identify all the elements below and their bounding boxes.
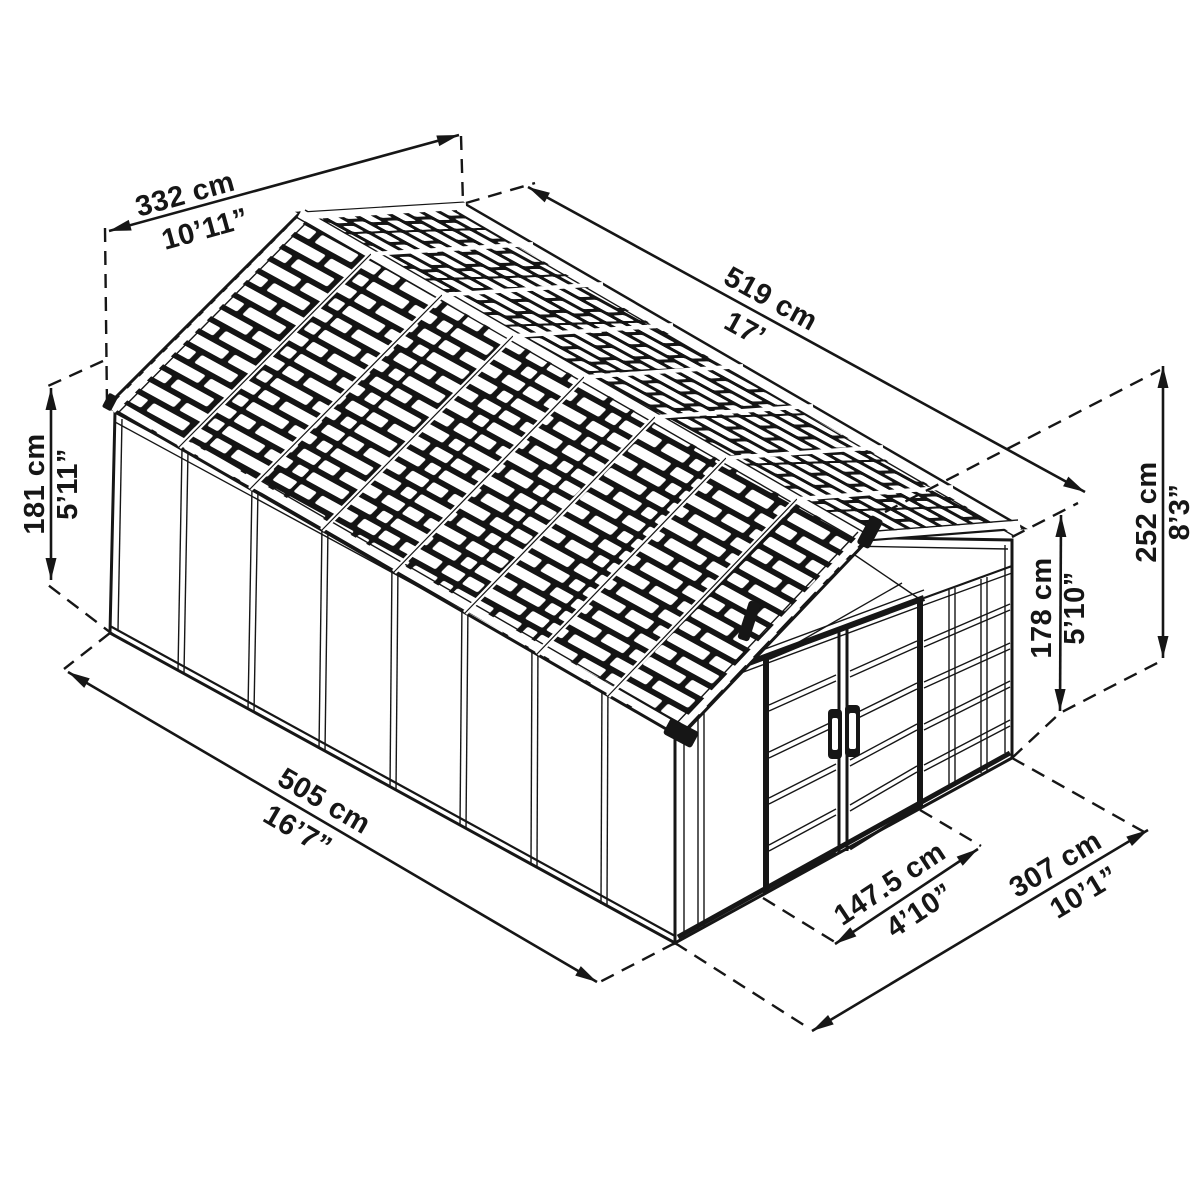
front-right-section — [924, 577, 1010, 788]
door-handle — [828, 705, 860, 759]
double-doors — [766, 600, 920, 893]
dim-base-width: 307 cm 10’1” — [812, 825, 1148, 1031]
dim-door-height-cm: 178 cm — [1026, 557, 1058, 658]
shed-dimension-diagram: 332 cm 10’11” 519 cm 17’ 181 cm 5’11” 25… — [0, 0, 1200, 1200]
door-right-panel-lines — [850, 641, 917, 811]
diagram-canvas: 332 cm 10’11” 519 cm 17’ 181 cm 5’11” 25… — [0, 0, 1200, 1200]
dim-total-height-imperial: 8’3” — [1164, 484, 1196, 541]
dim-base-length: 505 cm 16’7” — [68, 672, 597, 982]
dim-total-height-cm: 252 cm — [1131, 461, 1163, 562]
dim-wall-height: 181 cm 5’11” — [19, 388, 84, 580]
roof — [102, 203, 1023, 748]
dim-door-height: 178 cm 5’10” — [1026, 515, 1091, 711]
dim-wall-height-imperial: 5’11” — [52, 448, 84, 520]
door-left-panel-lines — [769, 675, 836, 851]
dim-total-height: 252 cm 8’3” — [1131, 366, 1196, 658]
dim-door-height-imperial: 5’10” — [1059, 571, 1091, 644]
dim-wall-height-cm: 181 cm — [19, 433, 51, 534]
